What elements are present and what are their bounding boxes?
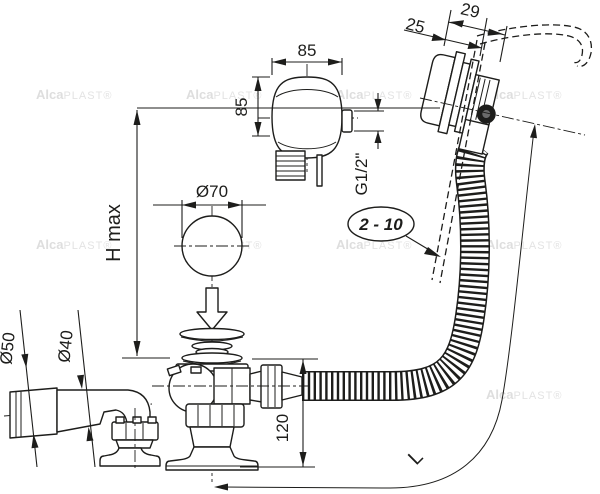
assembly-direction-arrow [197,288,227,330]
tee-bottom-nut [186,404,244,427]
dim-label-hose-length: L [404,446,427,469]
dim-head-height: 85 [232,77,270,136]
head-cable-pin [317,155,322,186]
dim-label-plug-diameter: Ø70 [196,182,228,201]
outlet-elbow [4,388,160,470]
dim-sleeve-diameter: Ø50 [0,310,38,467]
technical-drawing-canvas: AlcaPLAST® AlcaPLAST® AlcaPLAST® AlcaPLA… [0,0,600,494]
dim-label-h-max: H max [103,204,125,262]
dim-label-head-height: 85 [232,98,251,117]
bath-waste-overflow-drawing: AlcaPLAST® AlcaPLAST® AlcaPLAST® AlcaPLA… [0,0,600,494]
dim-label-25: 25 [404,14,427,37]
dim-label-trap-height: 120 [273,414,292,442]
watermark: AlcaPLAST® [336,87,412,102]
elbow-base-skirt [100,448,160,466]
dim-label-sleeve-diameter: Ø50 [0,331,19,365]
dim-label-2-10: 2 - 10 [358,215,403,234]
watermark: AlcaPLAST® [36,237,112,252]
dim-label-thread: G1/2" [352,153,371,196]
overflow-fitting [415,47,508,155]
head-threaded-outlet [276,151,305,180]
watermark: AlcaPLAST® [486,237,562,252]
corrugated-hose [302,144,477,386]
dim-label-pipe-diameter: Ø40 [54,329,76,363]
dim-hose-length: L [214,124,537,491]
hose-union-nut [261,365,282,408]
dim-label-head-width: 85 [298,41,317,60]
head-side-knob [342,110,352,132]
watermark: AlcaPLAST® [486,387,562,402]
overflow-control-head [258,64,358,186]
dim-label-29: 29 [459,0,482,22]
watermark: AlcaPLAST® [36,87,112,102]
waste-plug [180,329,244,366]
dim-rim-offsets: 29 25 [404,0,507,62]
